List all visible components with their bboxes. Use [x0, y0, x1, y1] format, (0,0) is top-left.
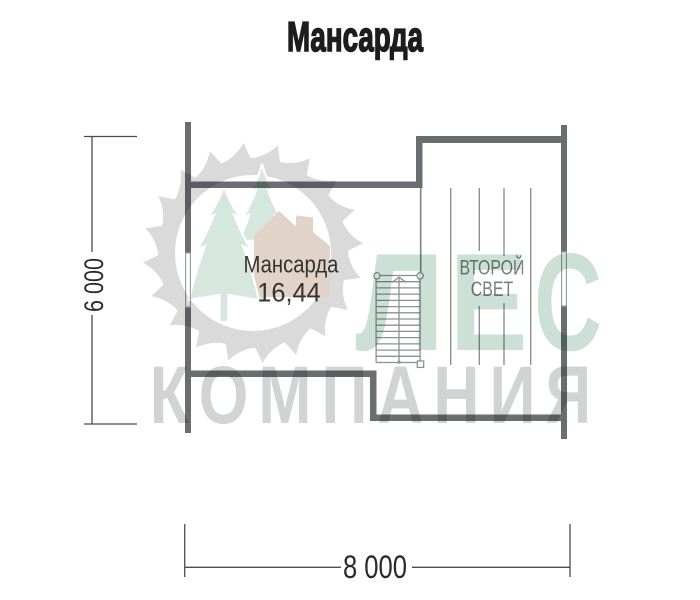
- svg-text:КОМПАНИЯ: КОМПАНИЯ: [150, 348, 602, 441]
